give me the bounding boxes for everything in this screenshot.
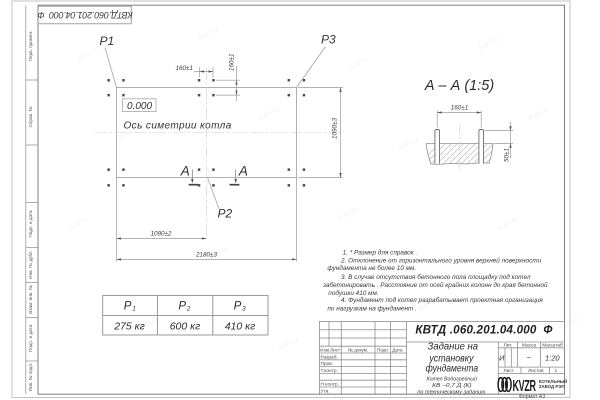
svg-text:Р2: Р2 [218,207,233,221]
svg-text:1090±3: 1090±3 [332,118,339,139]
svg-text:ЗАВОД РЭП: ЗАВОД РЭП [539,384,565,389]
svg-text:1090±2: 1090±2 [151,231,172,238]
svg-text:Подп. и дата: Подп. и дата [28,210,33,238]
svg-text:160±1: 160±1 [451,105,468,112]
svg-text:Инв. № дубл.: Инв. № дубл. [28,250,33,278]
svg-text:Подп.: Подп. [377,348,389,353]
svg-text:Инв. № подл.: Инв. № подл. [28,363,33,392]
svg-text:Листов: Листов [528,368,544,374]
svg-text:Взам. инв. №: Взам. инв. № [28,285,33,314]
svg-text:Задание на: Задание на [428,342,479,353]
svg-text:1:20: 1:20 [545,353,560,362]
svg-text:по техническому заданию: по техническому заданию [417,390,486,396]
svg-text:4. Фундамент под котел разраб: 4. Фундамент под котел разрабатывает про… [341,296,543,304]
svg-text:160±1: 160±1 [229,54,236,71]
svg-text:И: И [499,353,505,362]
svg-text:Дата: Дата [392,348,403,353]
svg-text:Котел Водогрейный: Котел Водогрейный [427,376,478,383]
svg-text:1: 1 [132,306,136,313]
svg-text:Т.контр.: Т.контр. [321,368,338,374]
svg-text:А – А (1:5): А – А (1:5) [424,78,494,94]
svg-text:275 кг: 275 кг [113,321,145,333]
svg-text:160±1: 160±1 [176,65,193,72]
svg-text:А: А [180,164,190,179]
svg-text:КВТД.060.201.04.000 Ф: КВТД.060.201.04.000 Ф [38,10,133,20]
svg-text:Лист: Лист [504,368,515,374]
svg-text:Перв. примен.: Перв. примен. [28,31,33,62]
svg-text:600 кг: 600 кг [170,321,201,333]
svg-text:1. * Размер для справок .: 1. * Размер для справок . [343,249,418,257]
svg-text:0.000: 0.000 [127,101,152,112]
svg-text:Подп. и дата: Подп. и дата [28,325,33,353]
svg-text:Изм.Лист: Изм.Лист [320,348,341,353]
svg-text:Ось симетрии котла: Ось симетрии котла [124,121,232,132]
svg-text:фундамента: фундамента [426,364,479,375]
svg-text:Разраб.: Разраб. [321,354,338,360]
svg-text:KVZR: KVZR [513,376,537,395]
svg-text:Справ. №: Справ. № [28,107,33,128]
svg-text:50±1: 50±1 [503,148,510,162]
svg-text:Р: Р [234,301,242,313]
svg-text:фундамента не более 10 мм.: фундамента не более 10 мм. [327,264,416,272]
svg-text:3. В случае отсутствия бетонн: 3. В случае отсутствия бетонного пола пл… [341,273,531,281]
svg-text:3: 3 [242,306,246,313]
svg-text:Масса: Масса [522,342,537,348]
svg-text:Утв.: Утв. [321,388,330,394]
svg-text:Лит.: Лит. [504,342,513,348]
svg-text:по нагрузкам на фундамент .: по нагрузкам на фундамент . [327,304,416,312]
svg-text:2: 2 [186,306,191,313]
svg-text:Р: Р [124,301,132,313]
svg-text:Масштаб: Масштаб [542,342,563,348]
svg-text:–: – [526,352,532,361]
svg-text:КВ –0,7 Д (К): КВ –0,7 Д (К) [432,383,472,389]
svg-text:№ докум.: № докум. [348,348,368,353]
svg-text:410 кг: 410 кг [225,321,256,333]
svg-text:Р: Р [178,301,186,313]
svg-text:Р3: Р3 [321,33,336,47]
svg-text:Пров.: Пров. [321,361,334,367]
svg-text:Н.контр.: Н.контр. [321,382,339,388]
svg-text:забетонировать . Расстояние о: забетонировать . Расстояние от осей край… [322,281,548,289]
svg-text:Формат А3: Формат А3 [519,394,545,400]
svg-text:подушки 410 мм.: подушки 410 мм. [328,289,378,297]
svg-text:2180±3: 2180±3 [195,252,217,259]
svg-text:А: А [238,164,248,179]
svg-text:2. Отклонение от горизонтальн: 2. Отклонение от горизонтального уровня … [340,256,542,264]
svg-text:КВТД .060.201.04.000 Ф: КВТД .060.201.04.000 Ф [415,324,553,337]
svg-text:Р1: Р1 [100,34,115,48]
svg-text:1: 1 [555,368,558,374]
